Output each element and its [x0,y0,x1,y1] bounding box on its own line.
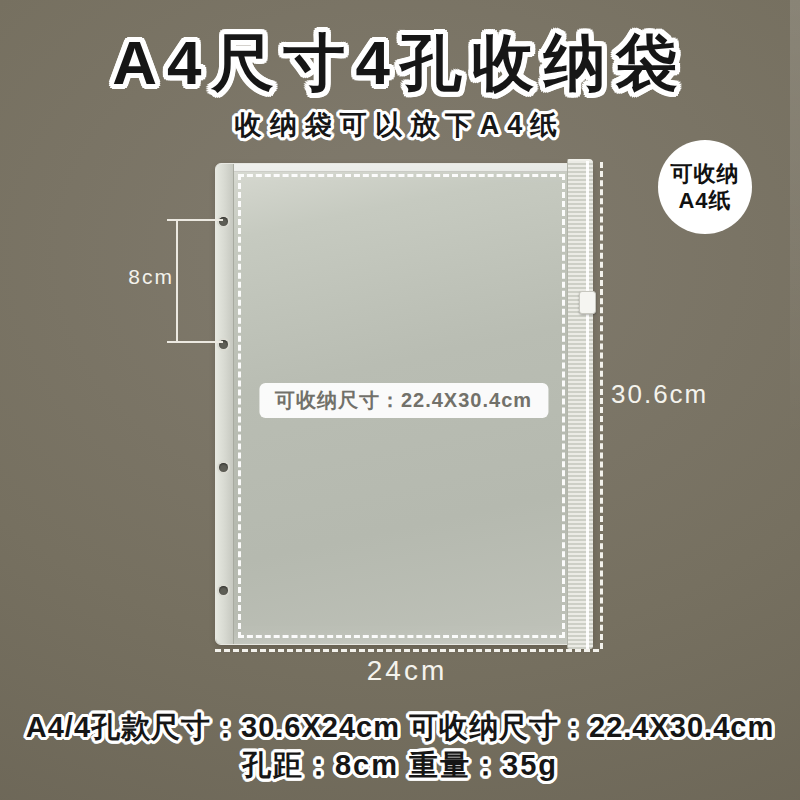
binder-hole-strip [216,164,234,644]
spec-line-2: 孔距：8cm 重量：35g [0,746,800,786]
zipper-slider [579,291,596,314]
page-subtitle: 收纳袋可以放下A4纸 [0,107,800,143]
bag-top-edge [216,164,591,172]
zipper-rail [567,159,593,649]
capacity-badge-line2: A4纸 [678,187,731,214]
hole-spacing-tick-top [167,219,223,221]
page-title: A4尺寸4孔收纳袋 [0,28,800,97]
capacity-badge-line1: 可收纳 [671,160,740,187]
binder-hole [219,463,228,472]
product-banner: A4尺寸4孔收纳袋 收纳袋可以放下A4纸 可收纳 A4纸 可收纳尺寸：22.4X… [0,0,800,800]
capacity-badge: 可收纳 A4纸 [658,140,752,234]
hole-spacing-measure-line [176,220,178,343]
zipper-track-line [586,161,589,649]
height-label: 30.6cm [611,379,708,410]
width-label: 24cm [215,655,599,687]
storage-bag: 可收纳尺寸：22.4X30.4cm [215,163,592,645]
width-measure-dashed-line [215,649,599,652]
hole-spacing-label: 8cm [120,265,174,289]
binder-hole [219,586,228,595]
spec-line-1: A4/4孔款尺寸：30.6X24cm 可收纳尺寸：22.4X30.4cm [0,708,800,748]
inner-size-label: 可收纳尺寸：22.4X30.4cm [259,383,548,418]
height-measure-dashed-line [600,162,603,649]
hole-spacing-tick-bottom [167,341,223,343]
